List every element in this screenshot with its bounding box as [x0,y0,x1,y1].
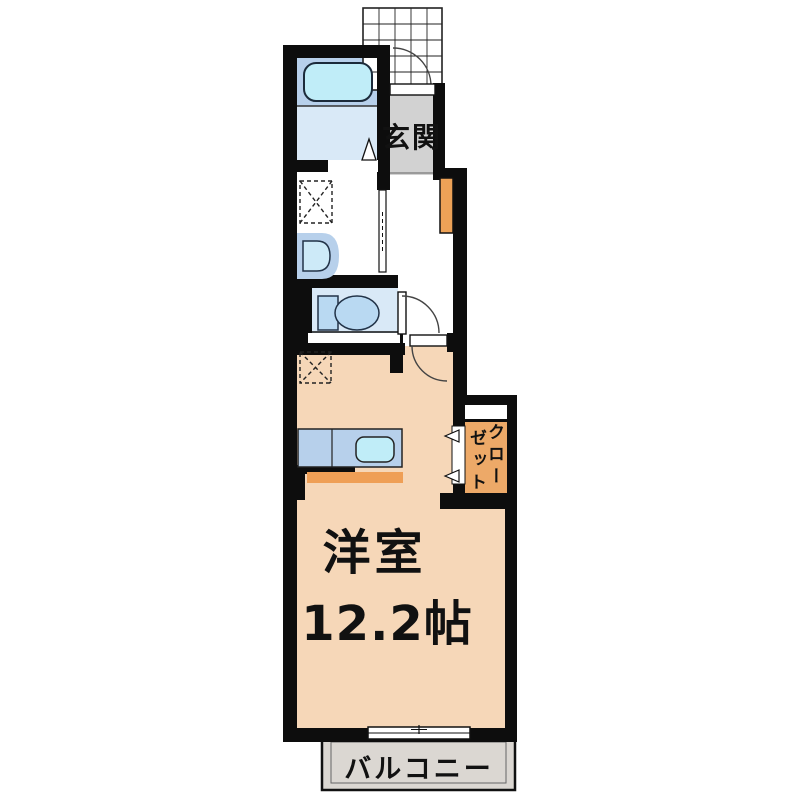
kitchen-counter [298,429,402,467]
genkan-label: 玄関 [366,116,458,156]
bathroom-door-opening [328,160,378,172]
bathtub [304,63,372,101]
kitchen-sink [356,437,394,462]
main-room-label: 洋室 [282,513,467,583]
toilet [318,296,379,330]
washing-machine-space [300,181,332,223]
vanity-sink [297,233,339,279]
kitchen-front-counter [307,472,403,483]
toilet-wall-band [308,333,400,343]
toilet-door [398,292,439,334]
main-room-size-label: 12.2帖 [287,584,487,654]
shoe-cabinet [440,178,453,233]
sliding-door [379,190,386,272]
balcony-label: バルコニー [322,747,516,786]
closet-label-column-left: ゼット [464,429,489,495]
balcony-window [368,725,470,739]
floorplan-canvas: 玄関 クロー ゼット 洋室 12.2帖 バルコニー [0,0,800,800]
